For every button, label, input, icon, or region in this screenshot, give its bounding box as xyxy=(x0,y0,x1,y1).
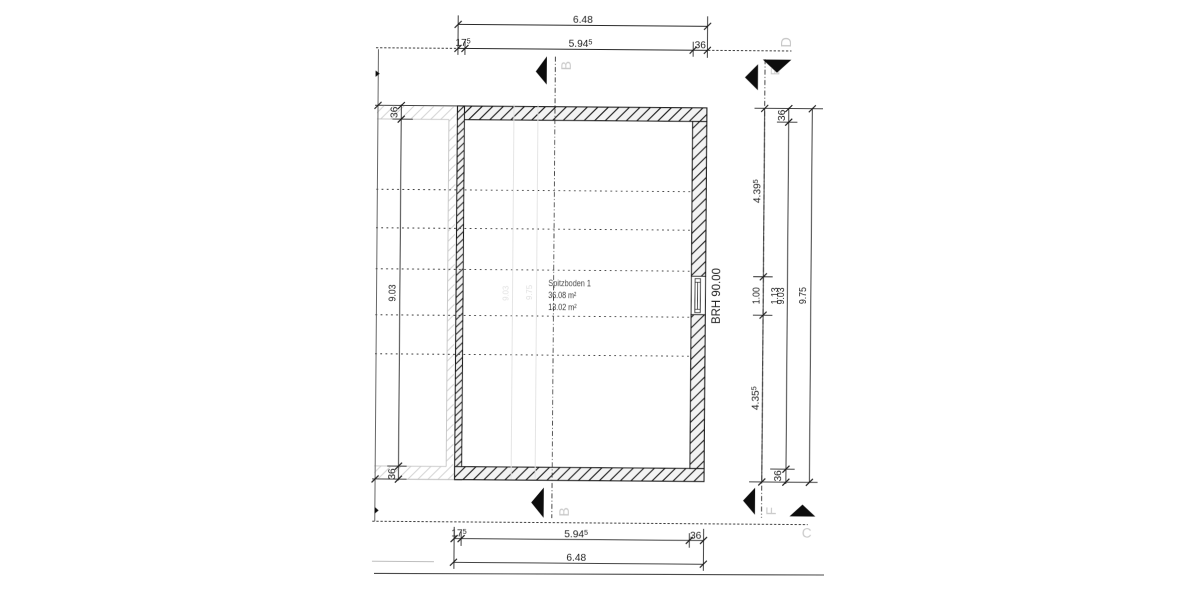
svg-text:B: B xyxy=(558,61,574,70)
svg-text:36: 36 xyxy=(695,40,707,51)
svg-text:6.48: 6.48 xyxy=(566,553,586,564)
svg-text:Spitzboden 1: Spitzboden 1 xyxy=(548,278,591,289)
svg-text:B: B xyxy=(556,507,572,516)
svg-text:9.75: 9.75 xyxy=(798,287,809,304)
svg-text:1.00: 1.00 xyxy=(751,287,762,304)
svg-text:BRH 90.00: BRH 90.00 xyxy=(711,268,723,324)
svg-text:9.03: 9.03 xyxy=(388,284,399,301)
svg-text:D: D xyxy=(779,37,795,48)
svg-text:F: F xyxy=(764,507,779,515)
svg-text:C: C xyxy=(802,526,812,541)
svg-text:9.75: 9.75 xyxy=(524,285,534,300)
svg-text:6.48: 6.48 xyxy=(573,15,593,26)
svg-text:9.03: 9.03 xyxy=(500,285,510,300)
svg-text:36: 36 xyxy=(690,531,702,542)
svg-text:13.02 m²: 13.02 m² xyxy=(548,302,577,313)
svg-text:9.03: 9.03 xyxy=(776,287,787,304)
svg-text:36: 36 xyxy=(387,468,398,480)
svg-text:36.08 m²: 36.08 m² xyxy=(548,290,577,301)
